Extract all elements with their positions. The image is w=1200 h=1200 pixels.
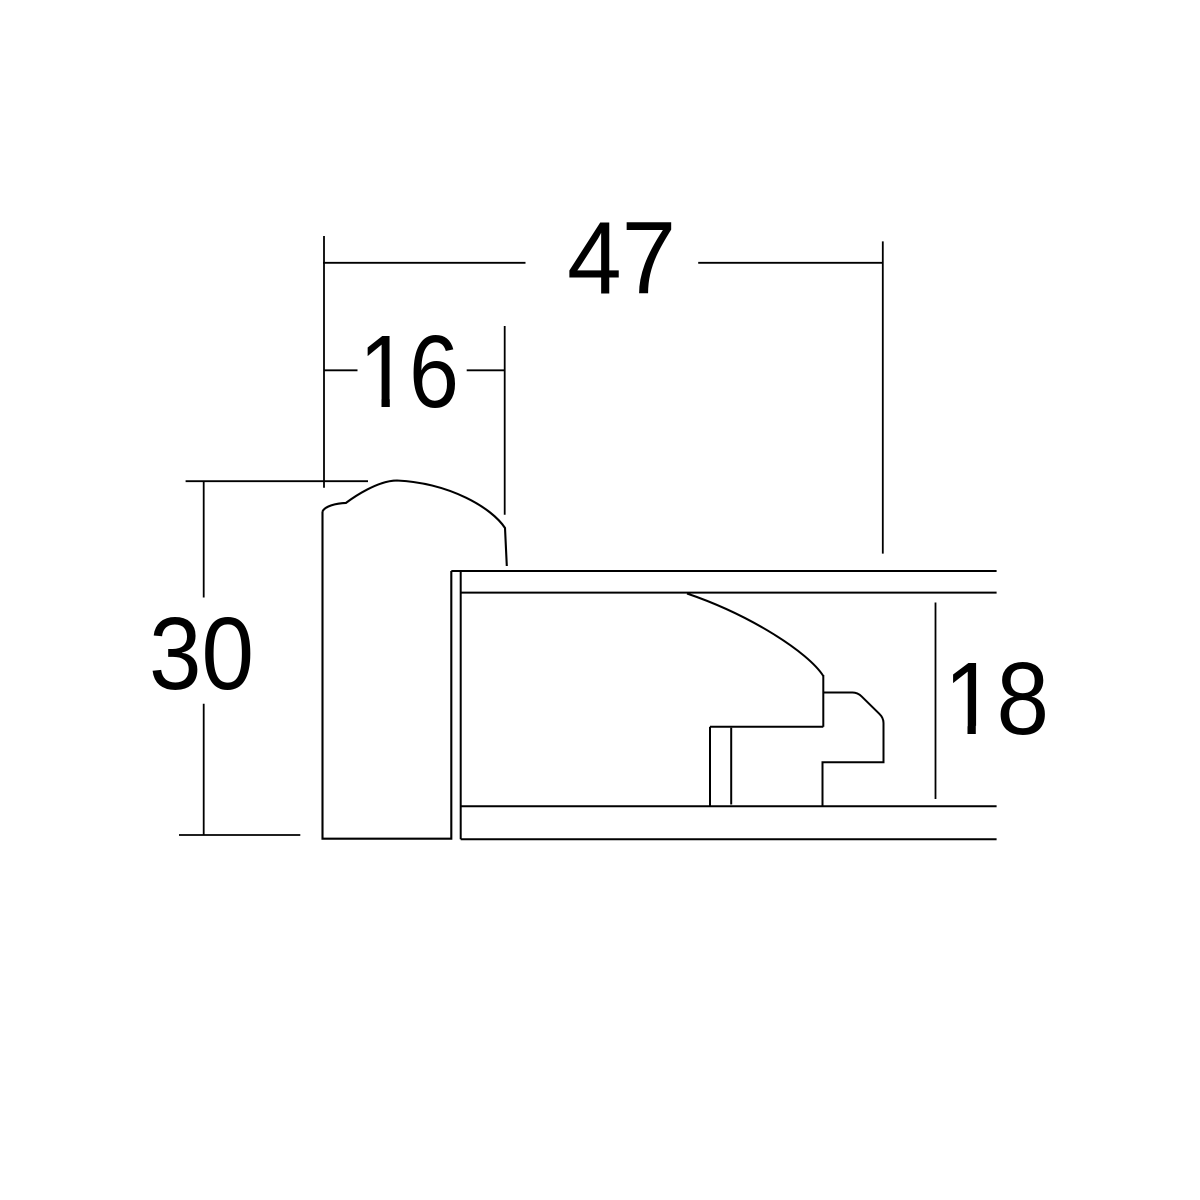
svg-text:47: 47 — [567, 201, 676, 316]
svg-text:18: 18 — [944, 641, 1049, 756]
svg-text:16: 16 — [359, 314, 459, 429]
svg-text:30: 30 — [149, 596, 254, 711]
